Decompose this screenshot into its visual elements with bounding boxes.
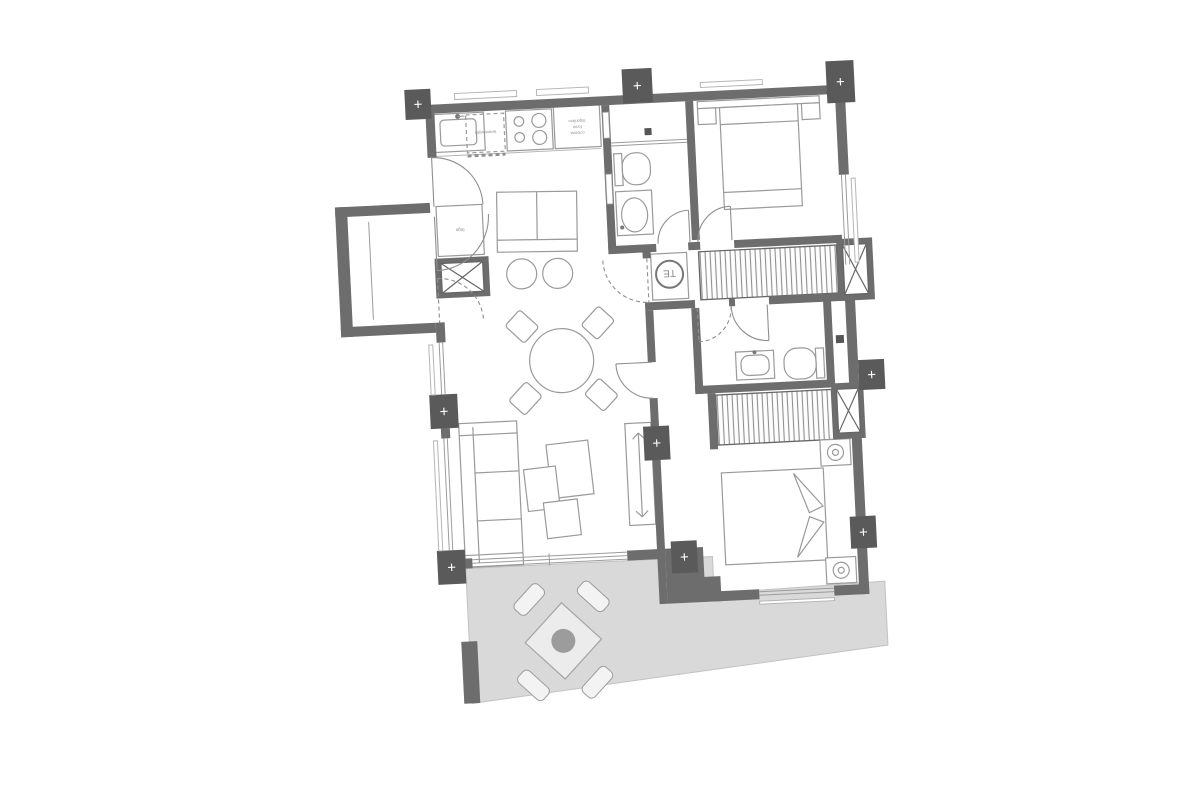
terrace-wall-segment (461, 641, 480, 704)
coffee-tables (522, 440, 596, 540)
double-bed-1 (719, 104, 802, 210)
window-kitchen-b (536, 87, 588, 96)
svg-text:+: + (859, 524, 869, 541)
toilet-1 (614, 152, 652, 186)
stove (505, 109, 553, 151)
nightstand-lamp (826, 557, 857, 584)
svg-text:+: + (836, 73, 846, 90)
nightstand (801, 103, 820, 120)
floor-plan-page: lavastoviglie colonna forno frigorifero (0, 0, 1200, 800)
door-corridor-dashed (603, 258, 649, 304)
dining-chair (581, 306, 615, 340)
dining-chair (505, 310, 539, 344)
column-marker: + (621, 68, 653, 103)
column-marker: + (404, 89, 431, 120)
window-bedroom-1-top (700, 79, 762, 87)
tall-unit-label-1: colonna (570, 130, 585, 136)
column-marker: + (850, 515, 878, 548)
living-room (453, 304, 657, 568)
svg-text:+: + (413, 96, 423, 113)
duct-icon (836, 335, 844, 343)
fridge-label: frigo (455, 227, 464, 232)
wardrobe-2 (716, 389, 834, 445)
window-living (433, 438, 452, 551)
svg-text:+: + (867, 366, 877, 383)
wall-niche (603, 112, 610, 138)
washbasin-1 (615, 190, 653, 236)
toilet-2 (783, 347, 824, 380)
bedroom-2 (720, 439, 857, 589)
kitchen-island (497, 191, 578, 289)
column-marker: + (825, 60, 855, 103)
tall-unit-column: colonna forno frigorifero (553, 104, 601, 148)
washbasin-2 (735, 349, 774, 380)
water-heater: TE (651, 252, 689, 300)
svg-text:+: + (447, 559, 457, 576)
window-kitchen-a (454, 91, 516, 100)
door-bathroom-2 (731, 305, 769, 343)
door-bathroom-2-dashed (697, 306, 733, 342)
floor-plan-drawing: lavastoviglie colonna forno frigorifero (303, 32, 936, 760)
svg-text:+: + (439, 403, 449, 420)
column-marker: + (643, 425, 671, 460)
svg-text:+: + (633, 77, 643, 94)
bathroom-1 (610, 126, 691, 236)
sofa (459, 421, 524, 568)
column-marker: + (437, 550, 467, 585)
wall-niche (606, 174, 613, 204)
dining-chair (509, 381, 543, 415)
fridge: frigo (436, 204, 484, 256)
column-marker: + (858, 359, 885, 390)
door-bedroom-1 (696, 206, 732, 242)
dining-table (504, 305, 619, 416)
bedroom-1 (697, 96, 824, 211)
tall-unit-label-3: frigorifero (568, 118, 586, 124)
svg-text:+: + (652, 435, 662, 452)
door-hall (616, 362, 654, 400)
window-dining (429, 342, 446, 395)
entry-closet-line (369, 222, 374, 320)
bar-stool (506, 259, 536, 289)
svg-text:+: + (680, 549, 690, 566)
dining-chair (584, 378, 618, 412)
wardrobe-1 (698, 245, 838, 300)
floor-plan: lavastoviglie colonna forno frigorifero (303, 32, 936, 760)
bar-stool (542, 258, 572, 288)
column-marker: + (429, 394, 459, 429)
shower-drain-icon (644, 128, 651, 135)
nightstand (698, 108, 717, 125)
double-bed-2 (721, 468, 827, 565)
tall-unit-label-2: forno (572, 124, 582, 129)
door-kitchen (432, 155, 483, 206)
column-marker: + (671, 540, 699, 573)
door-bathroom-1 (656, 210, 690, 244)
water-heater-label: TE (663, 267, 677, 279)
nightstand-lamp (820, 439, 851, 466)
corridor: TE (651, 245, 839, 302)
